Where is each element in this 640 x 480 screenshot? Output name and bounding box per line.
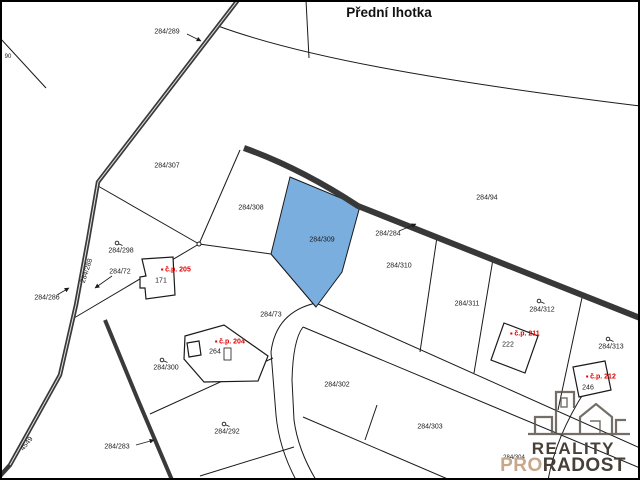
road-branch (105, 320, 172, 480)
leader-284-72 (95, 276, 112, 288)
garden-symbol-284-292 (222, 422, 229, 426)
road-west (0, 0, 238, 476)
leader-arrows (57, 34, 416, 445)
logo-text-radost: RADOST (543, 455, 626, 476)
building-171 (140, 257, 175, 299)
building-222 (491, 323, 538, 373)
cadastral-map-drawing (0, 0, 640, 480)
garden-symbol-284-313 (606, 337, 613, 341)
boundary-top-curve (218, 26, 640, 106)
garden-symbol-284-300 (160, 358, 167, 362)
logo-text-pro: PRO (500, 455, 543, 476)
lane-right-edge (292, 327, 316, 480)
map-title: Přední lhotka (289, 5, 489, 20)
logo-text-proradost: PRORADOST (500, 455, 626, 477)
boundary-top-left (0, 38, 46, 88)
garden-symbol-284-298 (115, 241, 122, 245)
leader-284-289 (187, 34, 201, 41)
garden-symbol-284-312 (537, 299, 544, 303)
building-264-annex (187, 341, 201, 357)
boundary-point-marker (197, 242, 201, 246)
leader-284-283 (136, 440, 154, 445)
leader-284-286 (57, 288, 69, 295)
building-246 (573, 361, 611, 397)
cadastral-map-view: Přední lhotka 284/28990284/307284/308284… (0, 0, 640, 480)
garden-symbols (115, 241, 613, 426)
